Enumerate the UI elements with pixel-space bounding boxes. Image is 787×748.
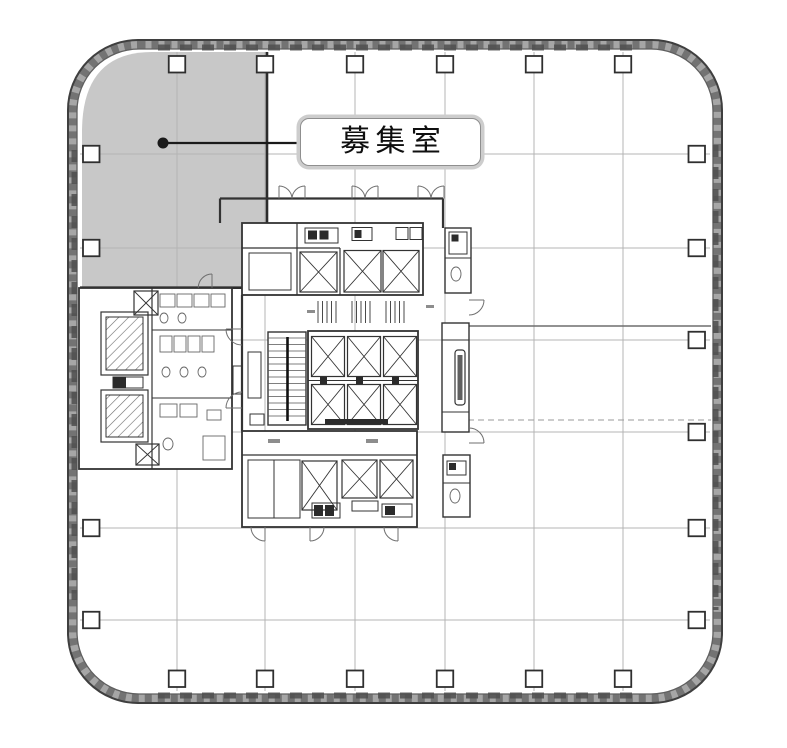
core-lower-block bbox=[242, 431, 417, 527]
available-area bbox=[82, 52, 267, 287]
available-room-callout: 募集室 bbox=[300, 118, 481, 166]
core-west-wall bbox=[233, 295, 264, 431]
floorplan-image: 募集室 bbox=[0, 0, 787, 748]
elevator-hall bbox=[307, 301, 434, 323]
core-upper-block bbox=[242, 223, 423, 295]
core-annex-upper bbox=[445, 228, 471, 293]
core-annex-middle bbox=[442, 323, 469, 432]
callout-text: 募集室 bbox=[335, 127, 447, 157]
core-annex-lower bbox=[443, 455, 470, 517]
elevator-bank bbox=[308, 331, 418, 429]
leader-dot bbox=[158, 138, 169, 149]
stairs bbox=[268, 332, 306, 425]
service-block bbox=[79, 288, 232, 469]
floor-plan-drawing bbox=[0, 0, 787, 748]
